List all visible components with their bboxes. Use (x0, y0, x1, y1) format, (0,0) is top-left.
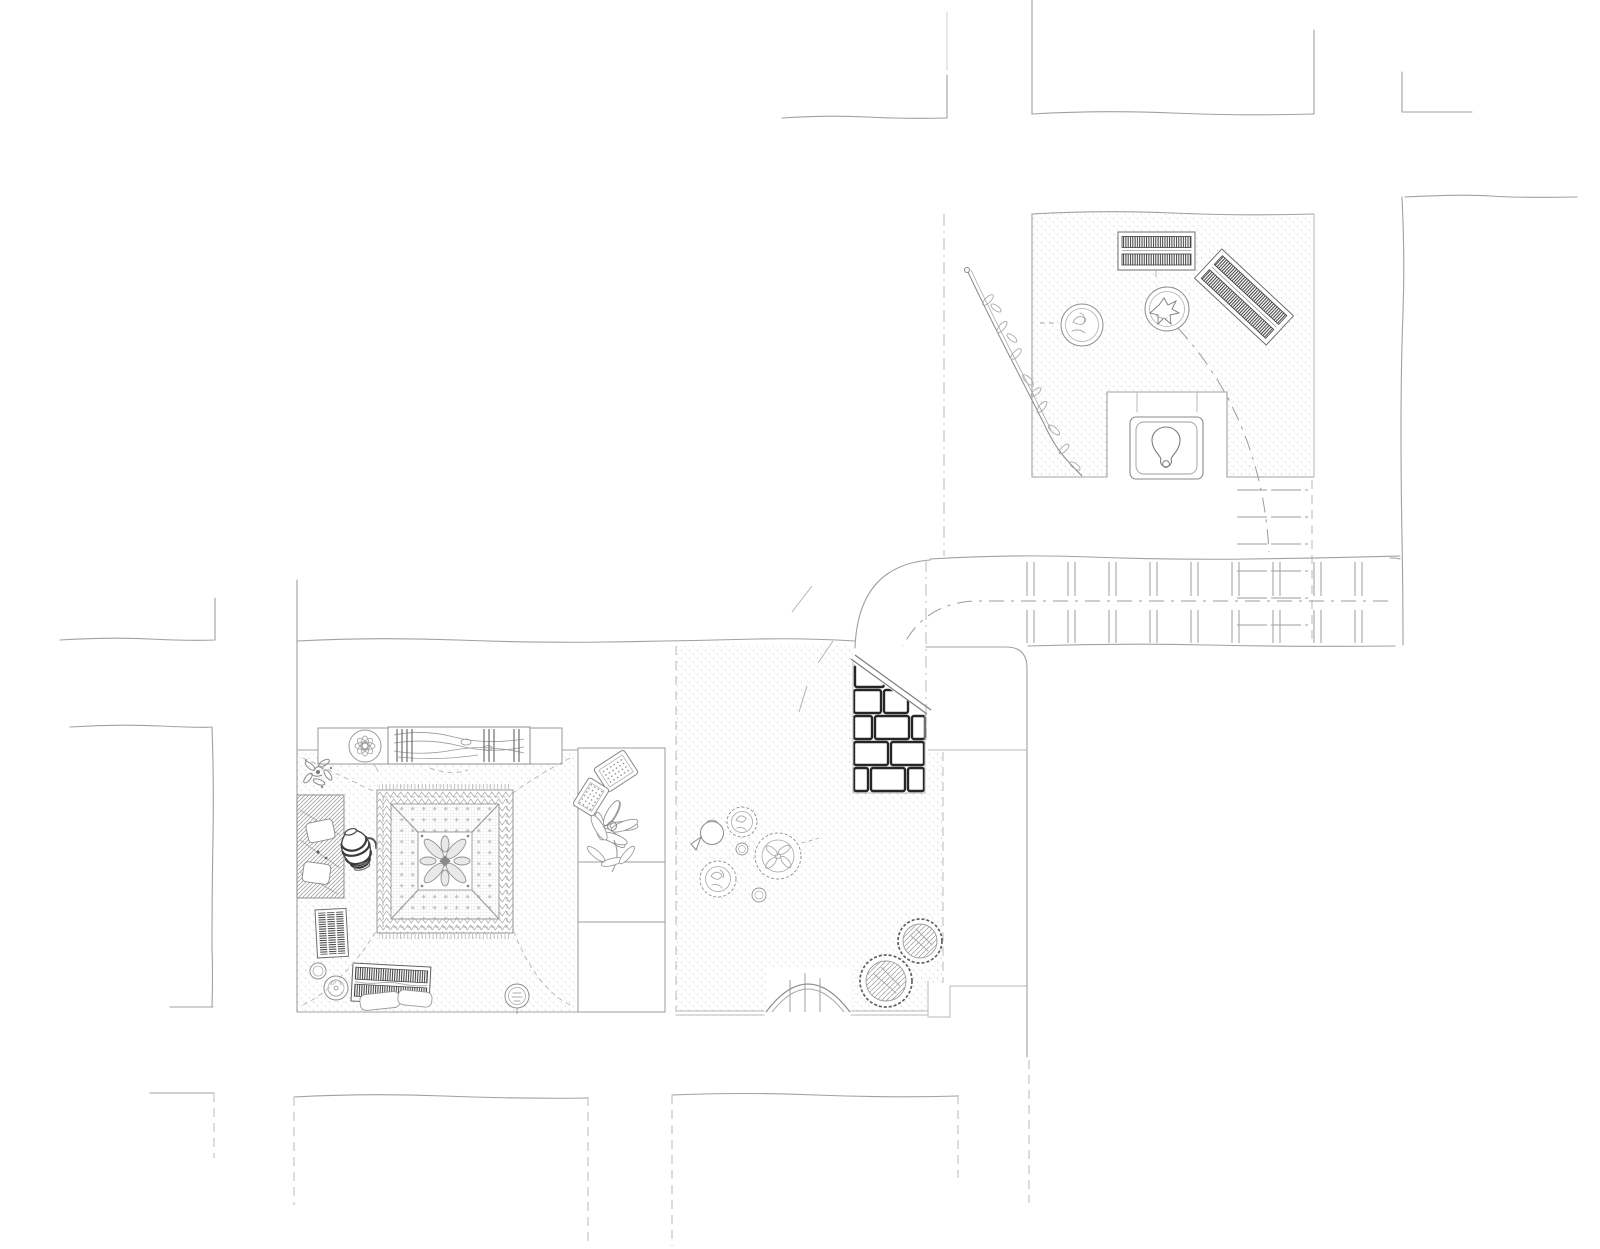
carpet-medallion (418, 832, 472, 890)
small-pot-1 (736, 843, 748, 855)
striped-bench (351, 963, 433, 1011)
top-wall-fragments (782, 0, 1472, 118)
small-pot-2 (752, 888, 766, 902)
wood-log-bench (388, 727, 530, 764)
cushion-2 (397, 989, 432, 1007)
arched-doorway (766, 968, 850, 1013)
round-tub-2 (860, 955, 912, 1007)
striped-mat-small (315, 908, 348, 958)
striped-mat-horizontal (1118, 232, 1195, 277)
corridor-top-wall (930, 556, 1400, 559)
courtyard-corner-wall (928, 981, 1026, 1017)
brick-masonry-section (854, 665, 925, 791)
potted-plant-a (727, 807, 757, 837)
bottom-wall-blocks (150, 1060, 1029, 1246)
left-street-walls (60, 598, 215, 1007)
carpet-fringe-top (379, 784, 511, 789)
empty-shelf-1 (578, 862, 665, 922)
round-tub-1 (898, 919, 942, 963)
storage-niche (572, 748, 665, 1012)
textured-bed (297, 795, 344, 898)
curved-outer-wall (855, 560, 930, 648)
squat-toilet (1130, 417, 1203, 479)
empty-shelf-2 (578, 922, 665, 1012)
terrace-stair-flight (1237, 480, 1312, 640)
floor-plan-drawing (0, 0, 1600, 1249)
brick-staircase (851, 655, 931, 793)
ornate-square-carpet (377, 784, 513, 939)
carpet-fringe-bottom (379, 934, 511, 939)
potted-plant-c (700, 861, 736, 897)
upper-terrace-room (944, 212, 1314, 640)
floor-plan-canvas (0, 0, 1600, 1249)
planter-pot-2 (1145, 287, 1189, 331)
right-wall (1401, 195, 1577, 645)
dashed-walk-line (903, 601, 1388, 646)
carpet-room (297, 727, 578, 1014)
